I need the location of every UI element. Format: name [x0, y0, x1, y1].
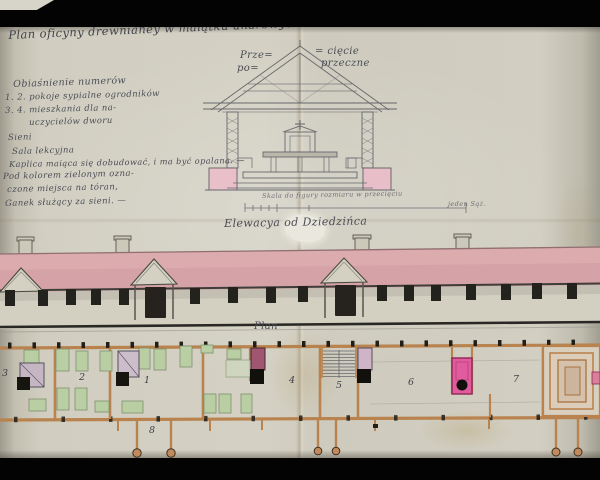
photographed-plan-sheet: 3 2 1 4 5 6 7 8 Plan oficyny drewnianey …: [0, 0, 600, 480]
elevation-drawing: [0, 234, 600, 332]
ink-drawing-layer: 3 2 1 4 5 6 7 8: [0, 0, 600, 480]
legend-line: Sieni: [8, 132, 32, 143]
plan-top-wall: [0, 345, 600, 348]
bottom-letterbox-bar: [0, 458, 600, 480]
plan-caption: Plan: [254, 321, 278, 332]
section-label-prze: Prze=: [240, 50, 273, 61]
elevation-caption: Elewacya od Dziedzińca: [224, 215, 367, 230]
section-label-po: po=: [237, 63, 259, 74]
floor-plan-drawing: 3 2 1 4 5 6 7 8: [0, 343, 600, 458]
scale-bar: [245, 203, 466, 213]
magenta-stove: [452, 358, 472, 394]
room-number-6: 6: [408, 377, 414, 388]
room-number-3: 3: [2, 368, 8, 379]
top-letterbox-bar: [0, 0, 600, 27]
room-number-8: 8: [149, 425, 155, 436]
porch-column-bases: [133, 447, 582, 457]
plan-chapel-annex: [543, 346, 600, 416]
room-number-1: 1: [144, 375, 150, 386]
room-number-7: 7: [513, 374, 520, 385]
scale-unit-label: jeden Sąż.: [448, 200, 486, 208]
section-foundation-blocks: [209, 168, 391, 190]
room-number-2: 2: [78, 372, 85, 383]
plan-staircase: [322, 347, 356, 378]
room-number-5: 5: [336, 380, 342, 391]
chapel-altar-section: [227, 120, 373, 188]
section-label-ciecie: = cięcie: [315, 46, 359, 57]
plan-porches: [118, 418, 582, 457]
legend-line: Sala lekcyjna: [12, 145, 74, 157]
section-label-przeczne: przeczne: [321, 58, 370, 69]
room-number-4: 4: [288, 375, 295, 386]
